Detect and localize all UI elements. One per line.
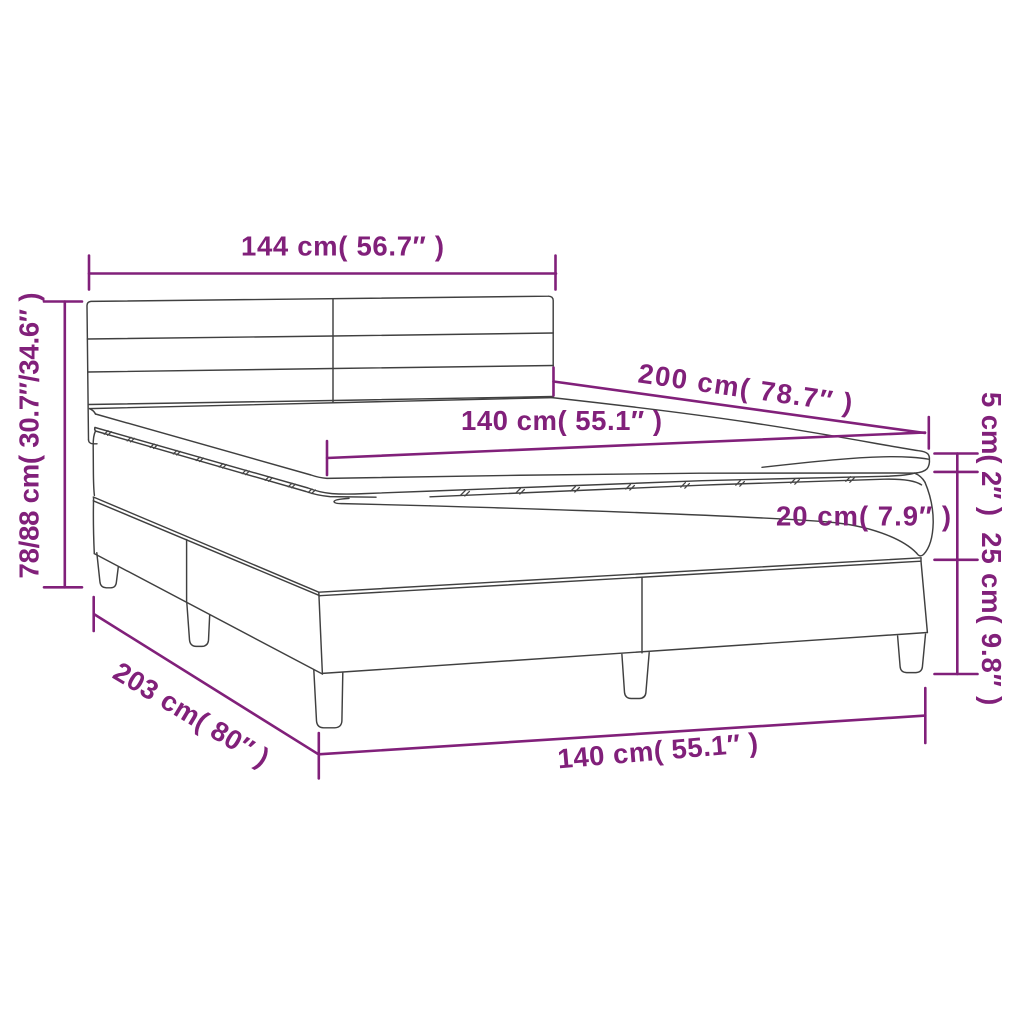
svg-text:140 cm( 55.1″ ): 140 cm( 55.1″ ) [461,405,662,436]
svg-text:144 cm( 56.7″ ): 144 cm( 56.7″ ) [241,231,444,262]
svg-text:20 cm( 7.9″ ): 20 cm( 7.9″ ) [776,500,951,531]
svg-text:78/88 cm( 30.7″/34.6″ ): 78/88 cm( 30.7″/34.6″ ) [14,293,45,579]
svg-text:25 cm( 9.8″ ): 25 cm( 9.8″ ) [976,532,1007,705]
svg-text:5 cm( 2″ ): 5 cm( 2″ ) [976,392,1007,516]
